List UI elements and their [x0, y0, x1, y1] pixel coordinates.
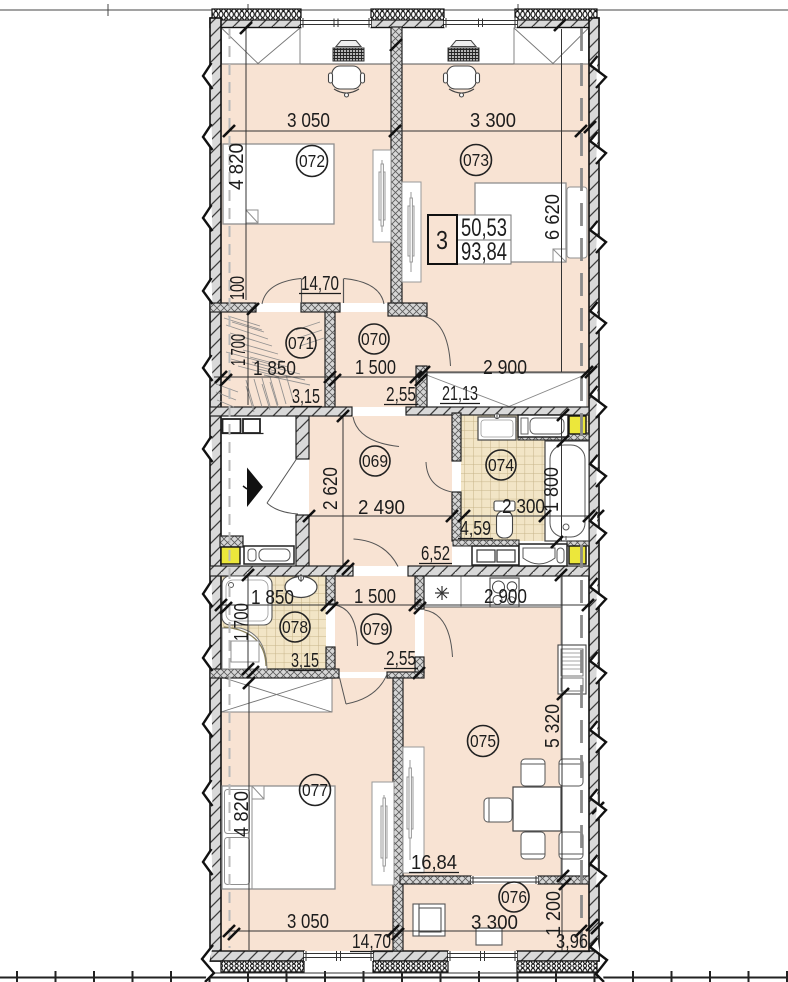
svg-text:5 320: 5 320 [542, 704, 564, 748]
svg-text:074: 074 [488, 455, 514, 475]
svg-text:6,52: 6,52 [421, 543, 450, 565]
svg-text:3,96: 3,96 [556, 931, 588, 953]
svg-text:4 820: 4 820 [226, 143, 248, 190]
svg-text:2 620: 2 620 [320, 467, 342, 510]
svg-text:2 900: 2 900 [483, 357, 527, 379]
svg-text:21,13: 21,13 [442, 383, 478, 405]
svg-text:076: 076 [501, 887, 527, 907]
svg-text:93,84: 93,84 [461, 238, 507, 266]
svg-text:069: 069 [362, 451, 388, 471]
svg-text:3 300: 3 300 [471, 912, 518, 934]
svg-text:3 300: 3 300 [470, 110, 516, 132]
svg-text:4,59: 4,59 [460, 518, 491, 540]
svg-text:1 700: 1 700 [228, 334, 250, 366]
svg-text:2 900: 2 900 [484, 586, 527, 608]
svg-text:3 050: 3 050 [287, 110, 330, 132]
svg-text:075: 075 [470, 731, 496, 751]
svg-text:078: 078 [282, 617, 308, 637]
svg-text:14,70: 14,70 [352, 931, 391, 953]
svg-text:1 850: 1 850 [251, 587, 294, 609]
svg-text:6 620: 6 620 [542, 194, 564, 240]
svg-text:073: 073 [463, 150, 489, 170]
svg-text:100: 100 [227, 276, 249, 300]
svg-text:3,15: 3,15 [292, 386, 320, 408]
svg-text:2 490: 2 490 [358, 497, 405, 519]
svg-text:2,55: 2,55 [386, 384, 416, 406]
svg-text:2 300: 2 300 [502, 496, 545, 518]
svg-text:16,84: 16,84 [411, 852, 457, 874]
svg-text:072: 072 [299, 151, 325, 171]
svg-text:079: 079 [363, 619, 389, 639]
svg-text:1 500: 1 500 [354, 586, 396, 608]
svg-text:1 500: 1 500 [355, 357, 396, 379]
svg-text:1 850: 1 850 [253, 358, 296, 380]
svg-text:070: 070 [361, 329, 387, 349]
svg-text:3: 3 [436, 225, 448, 255]
svg-text:1 700: 1 700 [231, 603, 253, 641]
svg-text:3,15: 3,15 [291, 650, 319, 672]
svg-text:3 050: 3 050 [287, 911, 329, 933]
svg-text:1 800: 1 800 [541, 467, 563, 512]
svg-text:077: 077 [302, 780, 328, 800]
svg-text:14,70: 14,70 [301, 273, 339, 295]
svg-text:1 200: 1 200 [543, 891, 565, 936]
svg-text:2,55: 2,55 [386, 648, 416, 670]
svg-text:071: 071 [288, 333, 314, 353]
svg-text:4 820: 4 820 [231, 791, 253, 837]
